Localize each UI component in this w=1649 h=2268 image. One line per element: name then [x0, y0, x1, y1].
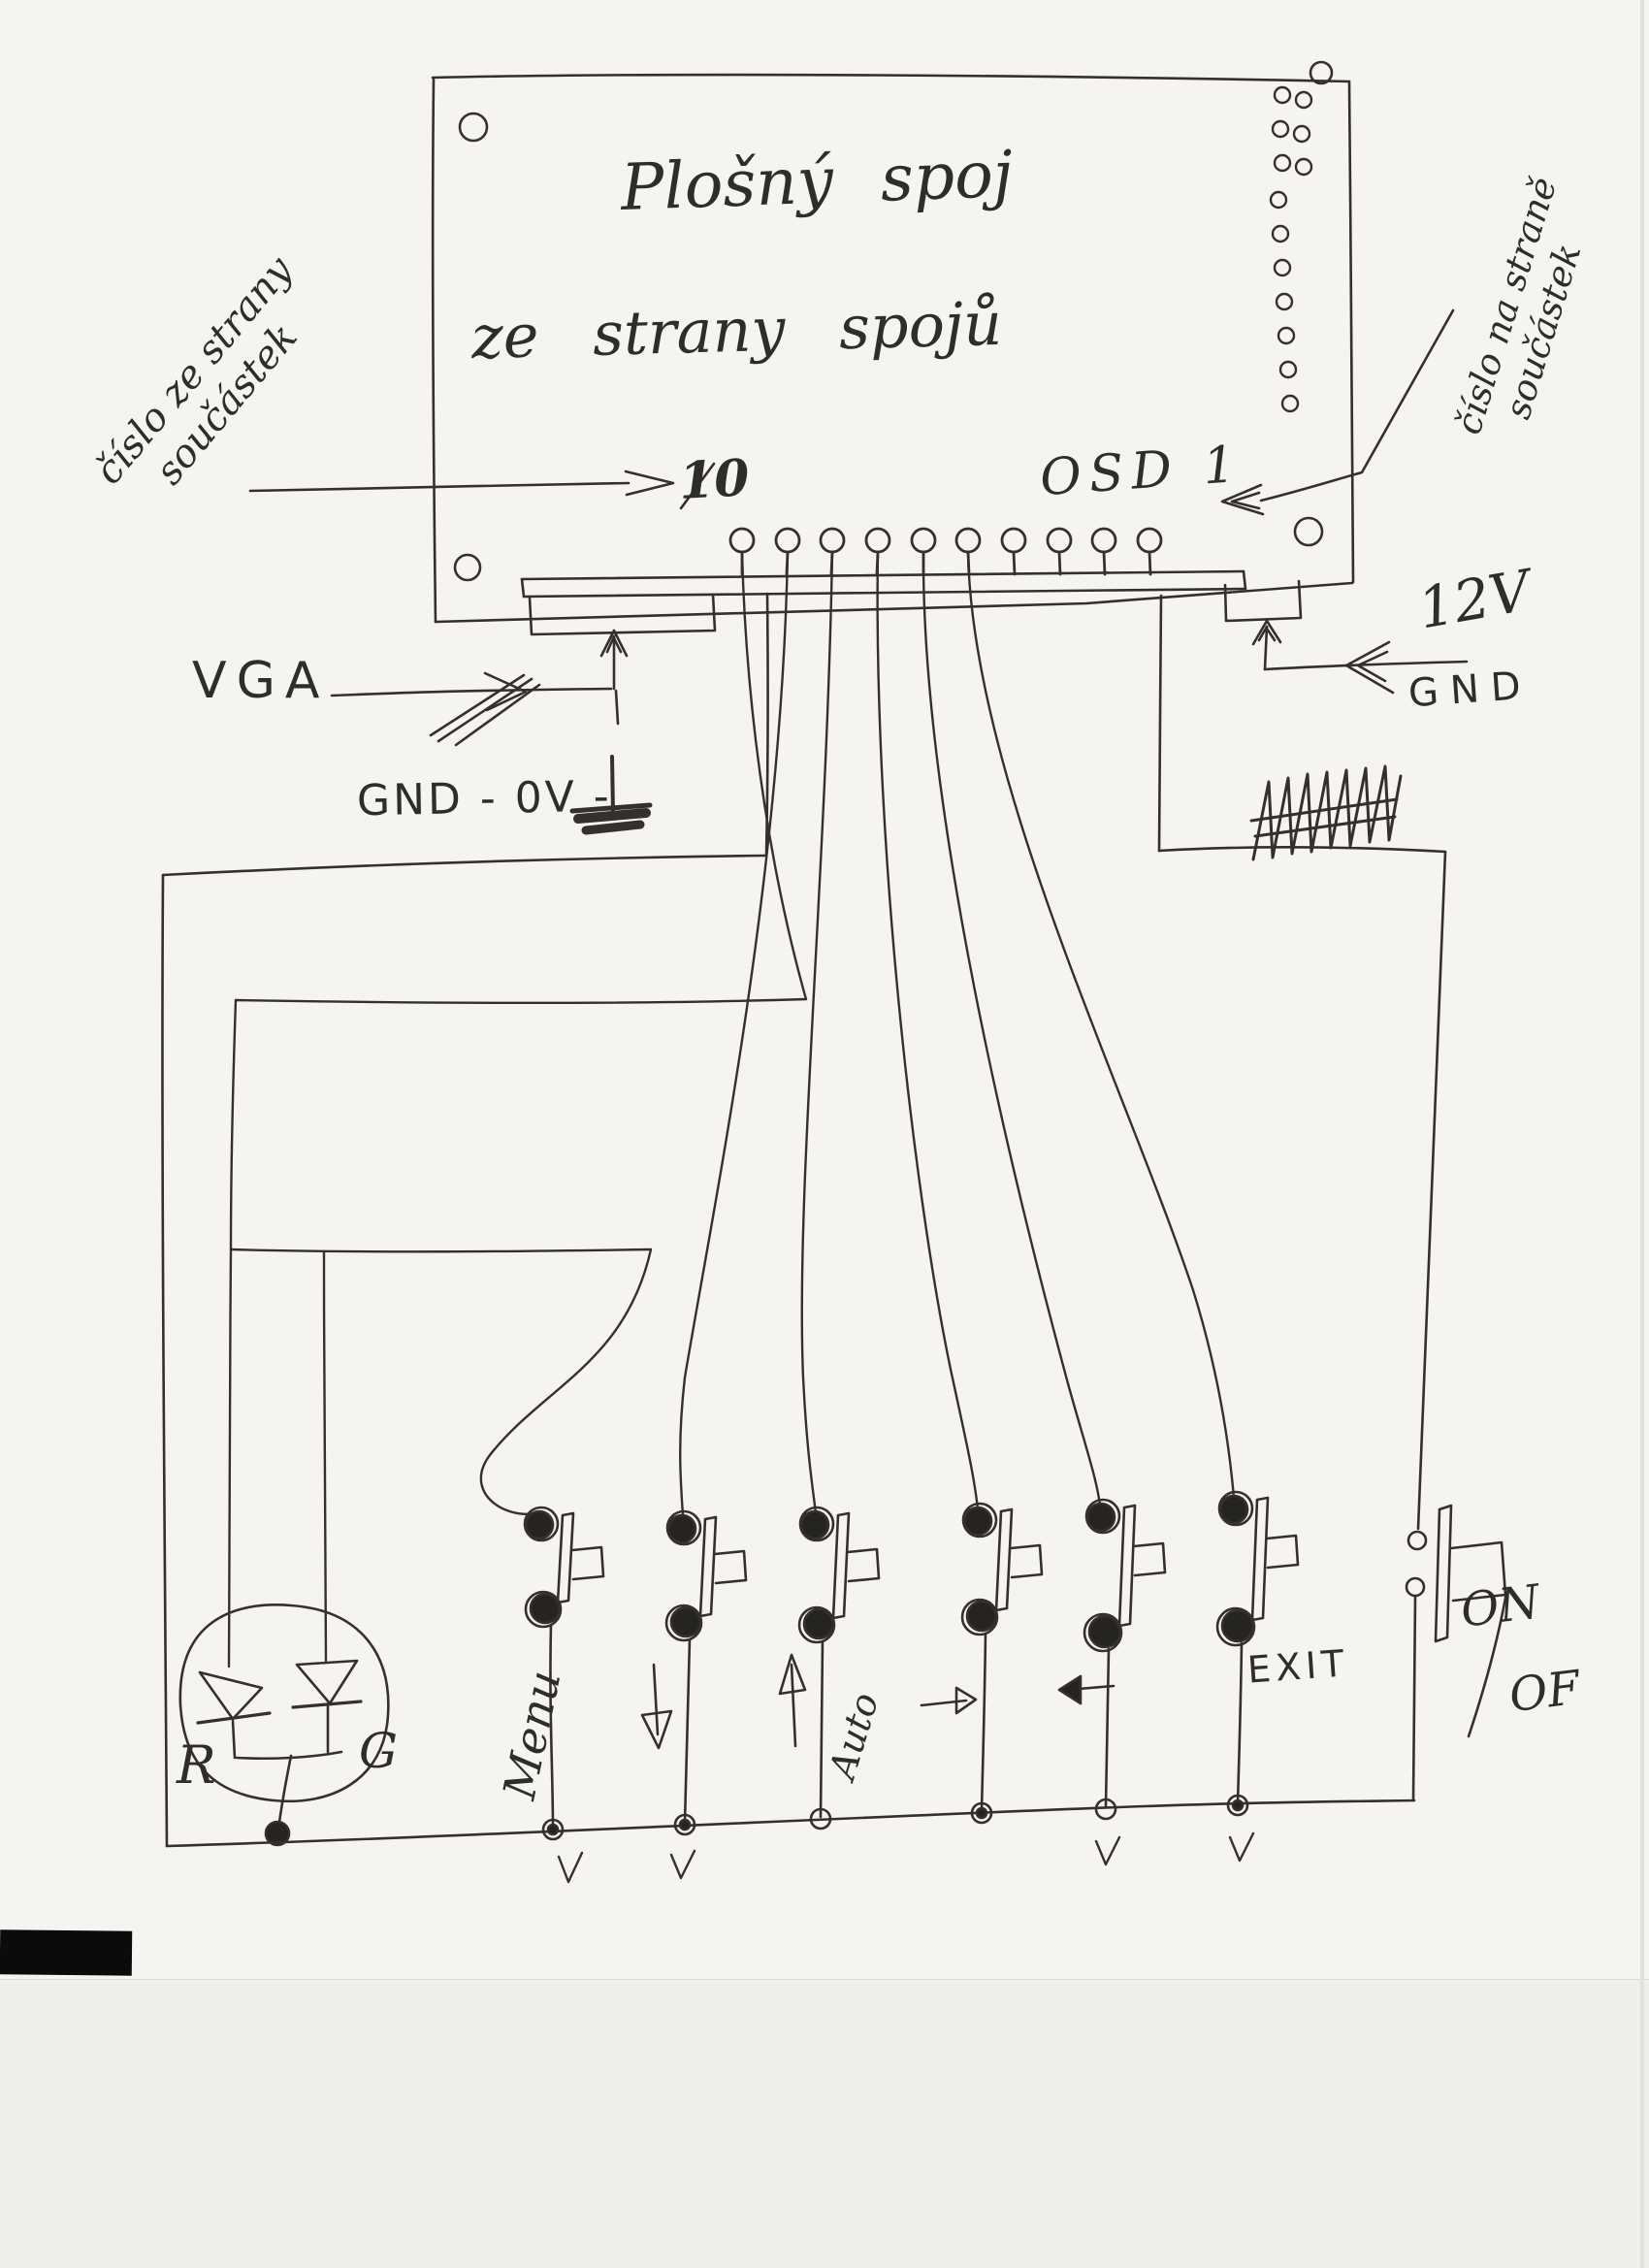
scan-edge-shadow [1640, 0, 1644, 2268]
gnd-right-wire [1159, 596, 1445, 1529]
pin-row [730, 529, 1161, 574]
led-circle [180, 1604, 389, 1845]
scanned-schematic: Plošný spoj ze strany spojů číslo ze str… [0, 0, 1649, 2268]
pin-wires [680, 552, 1234, 1515]
diode-g-icon [293, 1661, 361, 1752]
button-exit-label: EXIT [1246, 1641, 1350, 1691]
wire-to-button3 [802, 552, 832, 1513]
gnd-0v-label: GND - 0V - [357, 772, 613, 826]
switch-icon [833, 1513, 849, 1618]
power-on-label: ON [1458, 1574, 1543, 1637]
wire-to-led-g [324, 1251, 326, 1661]
page-title-line1: Plošný spoj [620, 137, 1015, 225]
wire-to-button4 [878, 552, 978, 1509]
right-arrow-icon [921, 1688, 976, 1713]
wire-to-button6 [968, 552, 1234, 1498]
edge-connector [522, 571, 1301, 634]
vga-label: VGA [192, 652, 329, 710]
gnd-right-label: GND [1407, 664, 1535, 717]
power-off-label: OF [1506, 1661, 1583, 1723]
switch-icon [1119, 1506, 1135, 1626]
up-arrow-icon [780, 1655, 805, 1746]
wire-to-button2 [680, 552, 788, 1515]
vga-wire [332, 631, 627, 745]
pin-left-label: 10 [677, 448, 750, 511]
button-auto [799, 1507, 879, 1829]
button-left [1084, 1500, 1165, 1819]
wire-to-led-r [229, 1249, 231, 1667]
button-down [666, 1511, 746, 1834]
left-arrow-icon [1346, 642, 1393, 693]
page-title-line2: ze strany spojů [470, 288, 1003, 373]
check-marks [559, 1833, 1253, 1882]
switch-icon [996, 1509, 1012, 1610]
switch-icon [1252, 1498, 1268, 1620]
scan-band [0, 1979, 1649, 2268]
zigzag-wire [229, 999, 806, 1667]
switch-icon [558, 1513, 573, 1603]
switch-icon [1436, 1506, 1451, 1641]
switch-icon [700, 1517, 716, 1616]
button-power [1406, 1506, 1506, 1800]
scan-edge-artifact [0, 1929, 132, 1975]
led-g-label: G [359, 1723, 398, 1779]
right-note-arrow [1222, 310, 1453, 514]
button-right [962, 1504, 1042, 1823]
down-arrow-icon [642, 1665, 671, 1748]
hatch-scribble [1251, 766, 1401, 859]
left-arrow-icon [1059, 1676, 1114, 1703]
solder-pad-cluster [1271, 87, 1311, 411]
led-r-label: R [177, 1734, 216, 1796]
left-note-arrow [250, 464, 714, 508]
